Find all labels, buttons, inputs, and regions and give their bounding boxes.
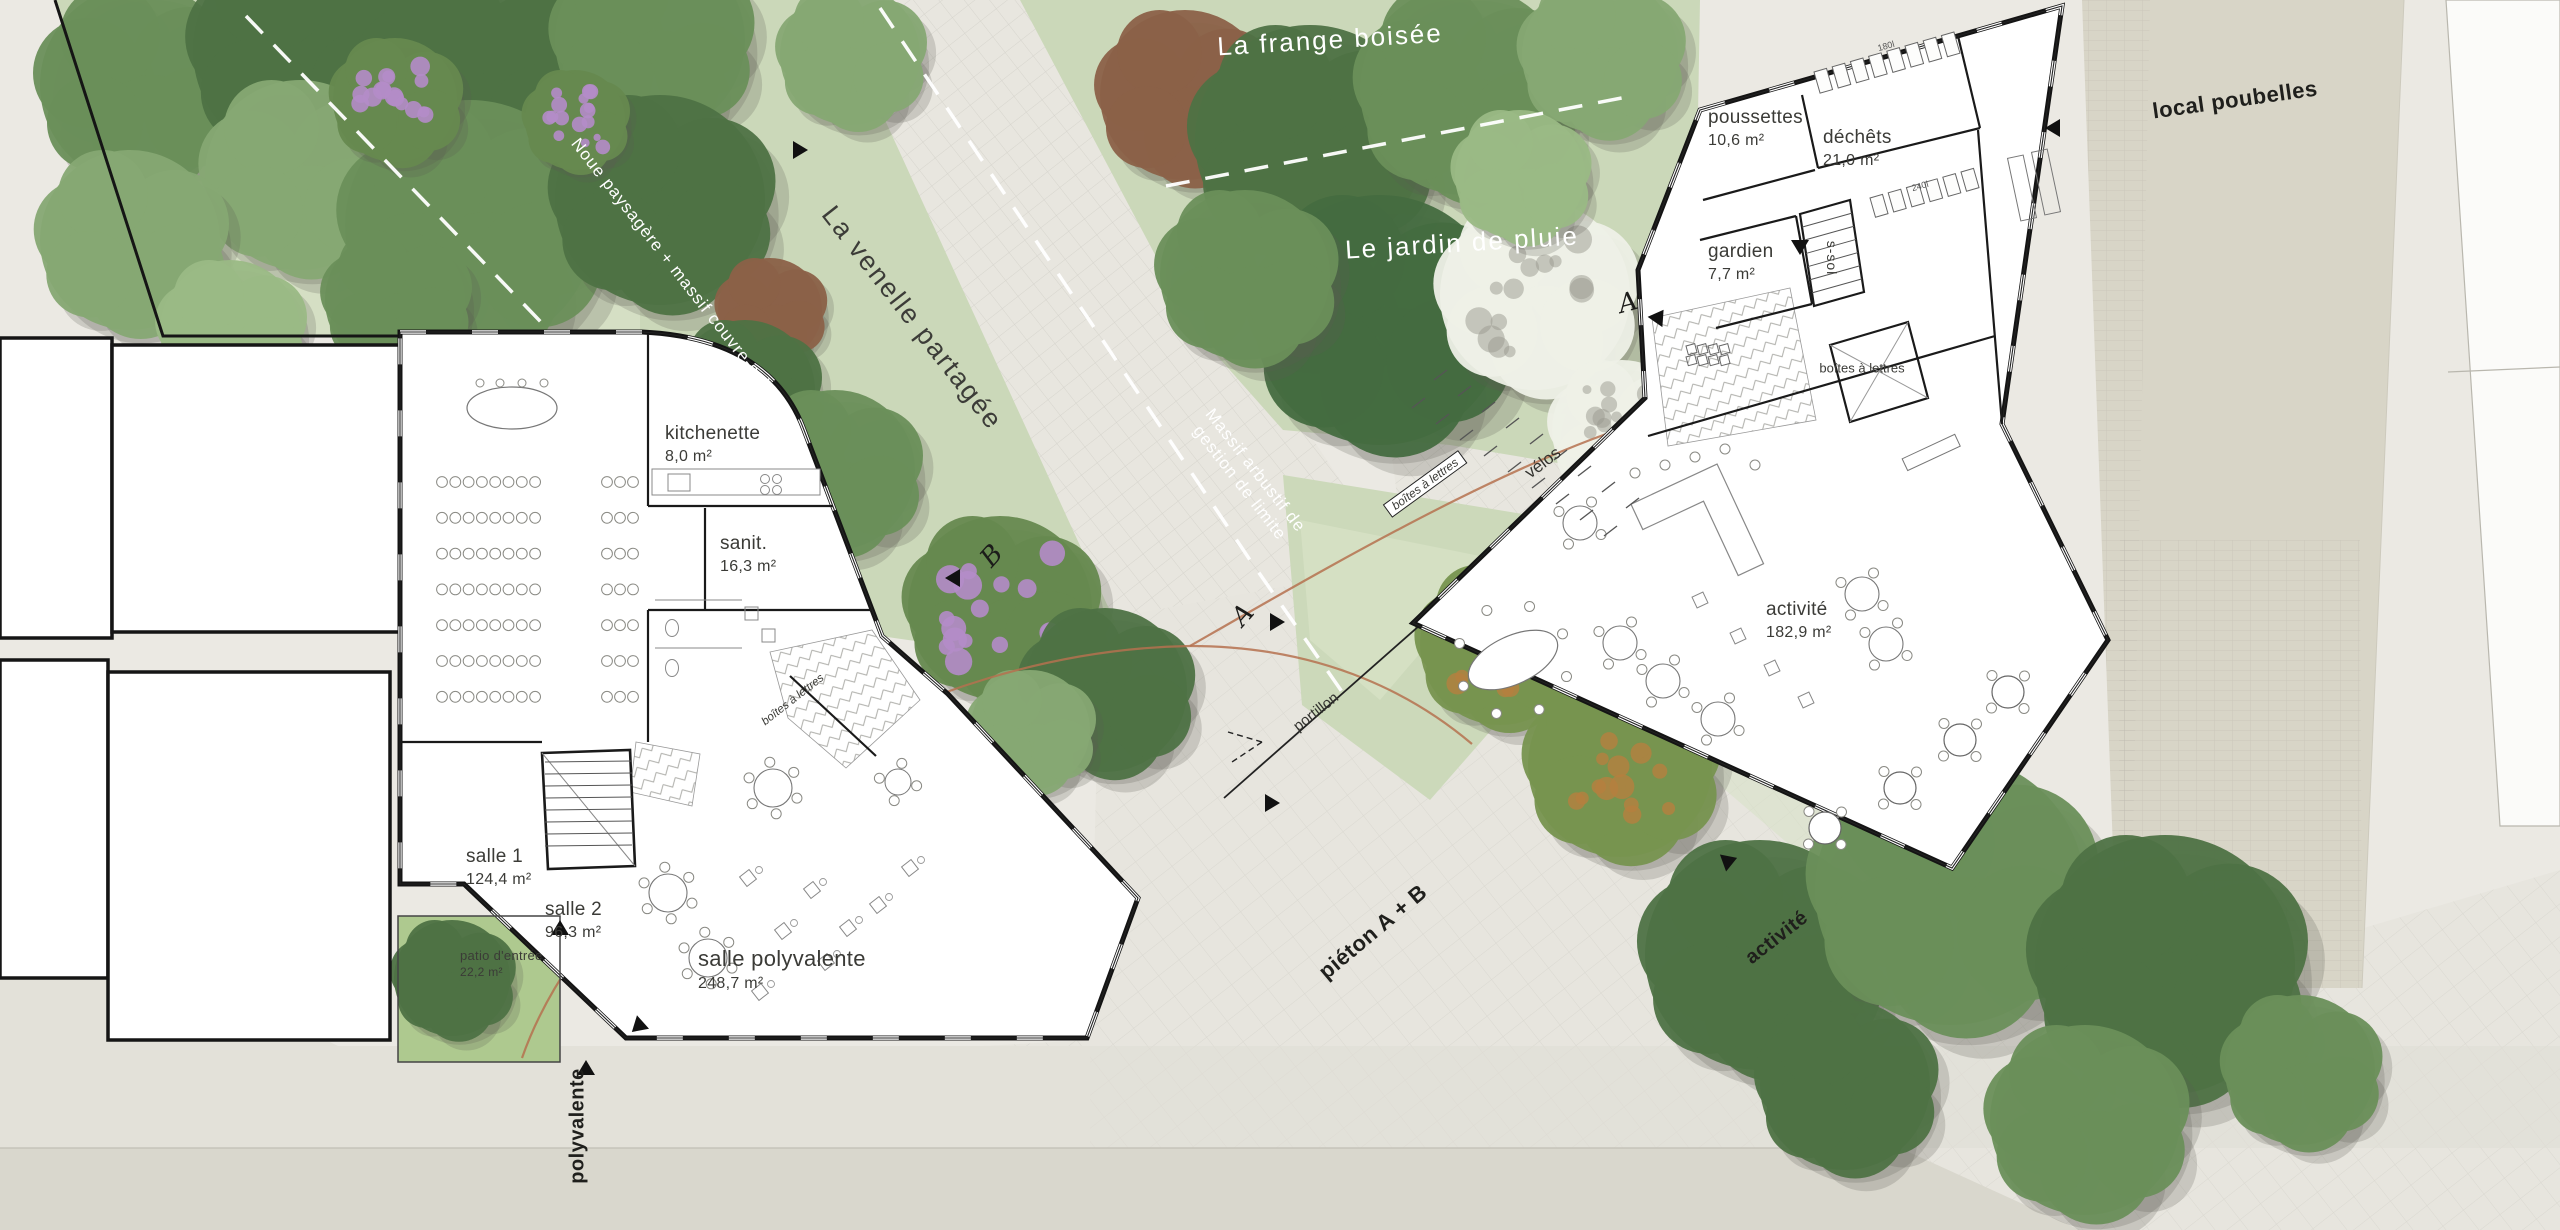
label-s-sol: s-sol — [1824, 241, 1840, 276]
room-sanitaires: sanit. 16,3 m² — [720, 532, 776, 577]
room-gardien: gardien 7,7 m² — [1708, 240, 1773, 285]
room-poussettes: poussettes 10,6 m² — [1708, 106, 1803, 151]
room-dechets: déchêts 21,0 m² — [1823, 126, 1892, 171]
room-patio: patio d'entrée 22,2 m² — [460, 948, 543, 980]
room-salle2: salle 2 96,3 m² — [545, 898, 602, 943]
site-plan: La frange boisée Le jardin de pluie La v… — [0, 0, 2560, 1230]
label-boites-lettres-court: boîtes à lettres — [1819, 361, 1904, 376]
label-polyvalente-access: polyvalente — [567, 1068, 590, 1184]
site-plan-drawing — [0, 0, 2560, 1230]
room-activite: activité 182,9 m² — [1766, 598, 1832, 643]
room-kitchenette: kitchenette 8,0 m² — [665, 422, 760, 467]
context-buildings — [0, 338, 408, 1040]
room-salle-polyvalente: salle polyvalente 248,7 m² — [698, 945, 866, 994]
room-salle1: salle 1 124,4 m² — [466, 845, 532, 890]
